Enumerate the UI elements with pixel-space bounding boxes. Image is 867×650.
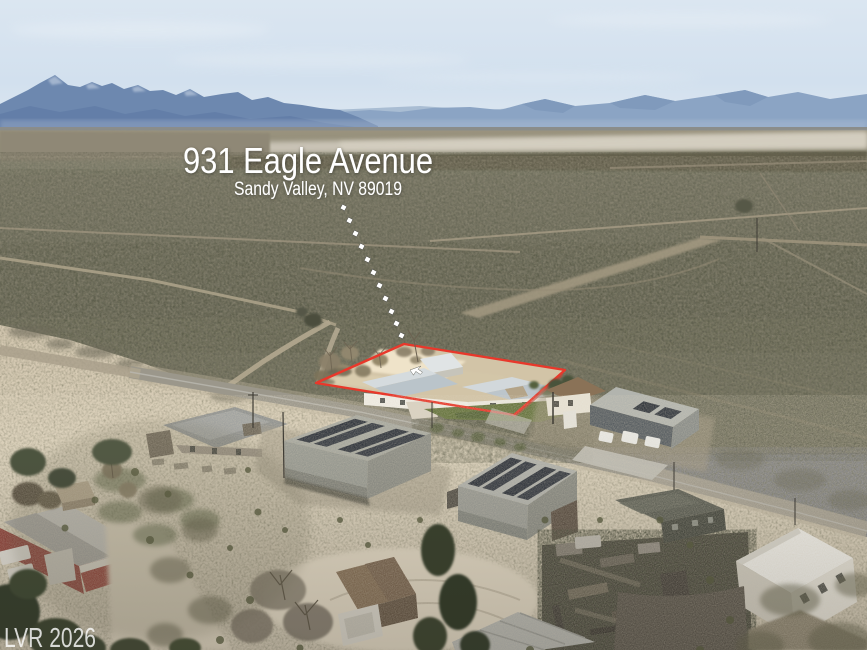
svg-text:Sandy Valley, NV 89019: Sandy Valley, NV 89019 [234,179,402,200]
svg-text:LVR 2026: LVR 2026 [4,622,96,650]
svg-text:931 Eagle Avenue: 931 Eagle Avenue [183,140,433,181]
